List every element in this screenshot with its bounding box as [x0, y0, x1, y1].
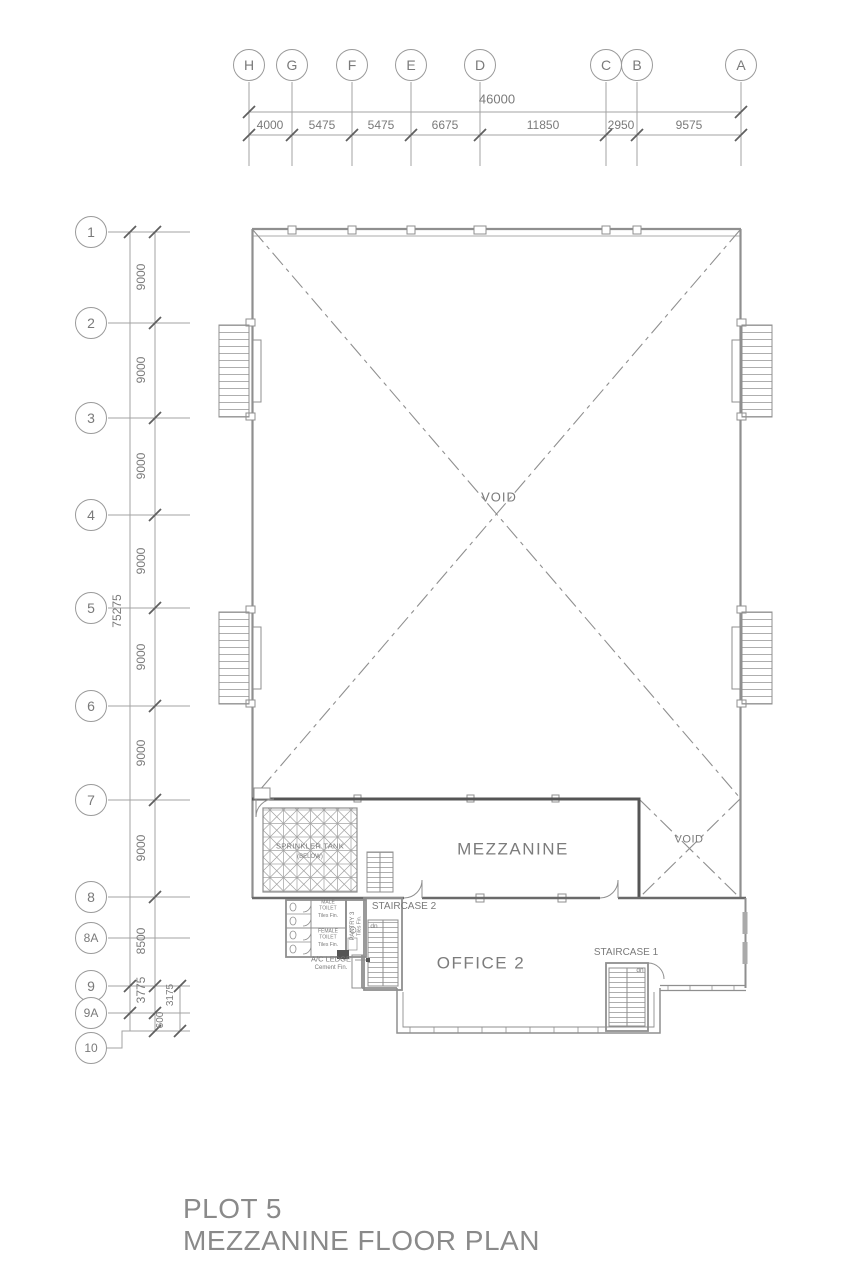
- dim-row-2-3: 9000: [135, 357, 147, 384]
- grid-bubble-9-label: 9: [87, 978, 95, 994]
- office-outline: [362, 898, 748, 1033]
- grid-bubble-8-label: 8: [87, 889, 95, 905]
- void-small-label: VOID: [675, 835, 704, 846]
- dim-row-9-9A: 3775: [135, 977, 147, 1004]
- dim-row-8-9: 8500: [135, 928, 147, 955]
- grid-bubble-E: E: [395, 49, 427, 81]
- grid-bubble-G: G: [276, 49, 308, 81]
- column-marks: [246, 226, 746, 902]
- sheet-title-line1: PLOT 5: [183, 1193, 540, 1225]
- ac-ledge-label: A/C LEDGE: [311, 955, 351, 963]
- dim-row-7-8: 9000: [135, 835, 147, 862]
- dim-seg-BA: 9575: [676, 119, 703, 131]
- grid-bubble-B: B: [621, 49, 653, 81]
- void-main-label: VOID: [481, 491, 517, 504]
- dim-seg-GF: 5475: [309, 119, 336, 131]
- grid-bubble-2-label: 2: [87, 315, 95, 331]
- grid-bubble-1-label: 1: [87, 224, 95, 240]
- sheet-title: PLOT 5 MEZZANINE FLOOR PLAN: [183, 1193, 540, 1257]
- sheet-title-line2: MEZZANINE FLOOR PLAN: [183, 1225, 540, 1257]
- ac-ledge-drawing: [352, 955, 370, 988]
- dim-row-6-7: 9000: [135, 740, 147, 767]
- grid-bubble-H: H: [233, 49, 265, 81]
- dim-3175: 3175: [166, 984, 176, 1006]
- grid-bubble-D: D: [464, 49, 496, 81]
- grid-bubble-G-label: G: [287, 57, 298, 73]
- grid-bubble-C-label: C: [601, 57, 611, 73]
- staircase1-dn-label: dn: [636, 968, 643, 975]
- grid-bubble-7: 7: [75, 784, 107, 816]
- grid-bubble-4-label: 4: [87, 507, 95, 523]
- floor-plan-sheet: H G F E D C B A 1 2 3 4 5 6 7 8 8A 9 9A …: [0, 0, 867, 1280]
- grid-bubble-10: 10: [75, 1032, 107, 1064]
- grid-bubble-D-label: D: [475, 57, 485, 73]
- staircase1-label: STAIRCASE 1: [594, 948, 658, 958]
- grid-bubble-9A-label: 9A: [84, 1006, 99, 1020]
- grid-bubble-5-label: 5: [87, 600, 95, 616]
- grid-bubble-6-label: 6: [87, 698, 95, 714]
- grid-bubble-8A-label: 8A: [84, 931, 99, 945]
- pantry-label: PANTRY 3: [350, 912, 356, 941]
- dim-row-1-2: 9000: [135, 264, 147, 291]
- dim-row-4-5: 9000: [135, 548, 147, 575]
- grid-bubble-7-label: 7: [87, 792, 95, 808]
- grid-bubble-F-label: F: [348, 57, 357, 73]
- grid-bubble-A-label: A: [736, 57, 745, 73]
- grid-bubble-6: 6: [75, 690, 107, 722]
- mezzanine-label: MEZZANINE: [457, 841, 569, 858]
- grid-bubble-E-label: E: [406, 57, 415, 73]
- dim-row-3-4: 9000: [135, 453, 147, 480]
- grid-bubble-1: 1: [75, 216, 107, 248]
- sprinkler-tank-label: SPRINKLER TANK: [276, 842, 344, 850]
- dim-seg-CB: 2950: [608, 119, 635, 131]
- grid-bubble-3-label: 3: [87, 410, 95, 426]
- staircase2-dn-label: dn: [370, 924, 377, 931]
- plan-linework: [0, 0, 867, 1280]
- dim-total-height: 75275: [111, 594, 123, 627]
- grid-bubble-3: 3: [75, 402, 107, 434]
- dim-600: 600: [156, 1012, 166, 1029]
- grid-bubble-9A: 9A: [75, 997, 107, 1029]
- dim-seg-ED: 6675: [432, 119, 459, 131]
- male-toilet-finish-label: Tiles Fin.: [318, 914, 338, 920]
- dim-seg-FE: 5475: [368, 119, 395, 131]
- ac-ledge-finish-label: Cement Fin.: [315, 965, 348, 971]
- male-toilet-label: MALE TOILET: [313, 900, 343, 912]
- grid-bubble-2: 2: [75, 307, 107, 339]
- grid-bubble-4: 4: [75, 499, 107, 531]
- pantry-finish-label: Tiles Fin.: [358, 916, 363, 936]
- dim-seg-DC: 11850: [527, 119, 559, 131]
- female-toilet-label: FEMALE TOILET: [313, 929, 343, 941]
- grid-bubble-C: C: [590, 49, 622, 81]
- grid-bubble-F: F: [336, 49, 368, 81]
- grid-bubble-10-label: 10: [84, 1041, 97, 1055]
- dim-row-5-6: 9000: [135, 644, 147, 671]
- dim-seg-HG: 4000: [257, 119, 284, 131]
- sprinkler-tank-sublabel: (BELOW): [297, 854, 323, 860]
- office2-label: OFFICE 2: [437, 955, 526, 972]
- left-grid-lines: [107, 232, 190, 1048]
- grid-bubble-5: 5: [75, 592, 107, 624]
- dim-total-width: 46000: [479, 93, 515, 106]
- grid-bubble-8: 8: [75, 881, 107, 913]
- grid-bubble-8A: 8A: [75, 922, 107, 954]
- female-toilet-finish-label: Tiles Fin.: [318, 943, 338, 949]
- grid-bubble-A: A: [725, 49, 757, 81]
- grid-bubble-B-label: B: [632, 57, 641, 73]
- staircase2-drawing: [364, 852, 402, 990]
- grid-bubble-H-label: H: [244, 57, 254, 73]
- staircase2-label: STAIRCASE 2: [372, 902, 436, 912]
